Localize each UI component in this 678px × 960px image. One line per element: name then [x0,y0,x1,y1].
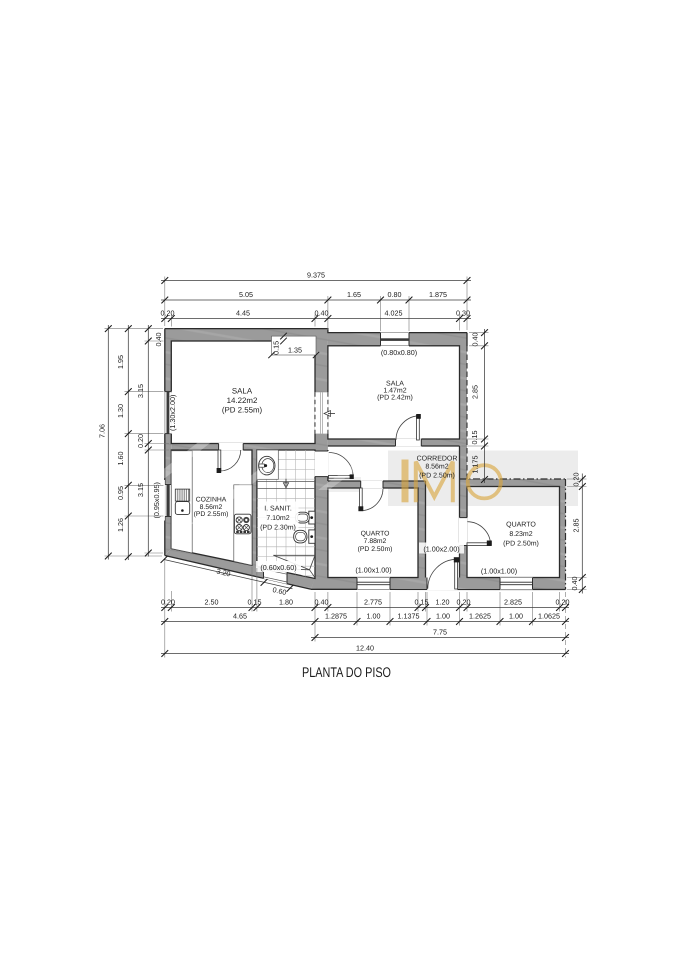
svg-text:0.15: 0.15 [248,598,262,607]
svg-text:(0.95x0.95): (0.95x0.95) [152,482,161,518]
svg-text:0.40: 0.40 [315,309,329,318]
svg-text:1.47m2: 1.47m2 [383,388,406,395]
svg-text:3.15: 3.15 [136,384,145,398]
svg-text:COZINHA: COZINHA [196,497,227,504]
svg-text:1.00: 1.00 [436,612,450,621]
svg-text:1.60: 1.60 [116,452,125,466]
svg-text:2.85: 2.85 [471,385,480,399]
svg-text:8.23m2: 8.23m2 [509,531,532,538]
svg-text:0.40: 0.40 [154,333,163,347]
svg-text:1.26: 1.26 [116,518,125,532]
svg-text:1.30: 1.30 [116,404,125,418]
svg-text:4.65: 4.65 [233,612,247,621]
svg-text:0.20: 0.20 [556,598,570,607]
svg-text:(0.60x0.60): (0.60x0.60) [260,563,296,572]
svg-text:(1.00x2.00): (1.00x2.00) [423,545,459,554]
svg-text:(PD 2.50m): (PD 2.50m) [358,546,393,553]
svg-text:(PD 2.50m): (PD 2.50m) [503,540,539,548]
svg-text:SALA: SALA [232,387,253,396]
svg-text:1.95: 1.95 [116,355,125,369]
svg-text:(1.00x1.00): (1.00x1.00) [355,565,391,574]
svg-text:1.00: 1.00 [367,612,381,621]
svg-text:1.0625: 1.0625 [538,612,560,621]
svg-text:(1.00x1.00): (1.00x1.00) [481,567,517,576]
svg-text:0.80: 0.80 [388,290,402,299]
svg-text:2.775: 2.775 [364,598,382,607]
svg-text:1.175: 1.175 [471,456,480,474]
svg-text:(PD 2.55m): (PD 2.55m) [194,511,229,518]
svg-text:SALA: SALA [386,381,404,388]
svg-text:(PD 2.50m): (PD 2.50m) [419,472,455,480]
svg-text:7.88m2: 7.88m2 [364,538,387,545]
svg-text:12.40: 12.40 [356,644,374,653]
svg-text:CORREDOR: CORREDOR [417,456,458,463]
svg-text:(PD 2.30m): (PD 2.30m) [260,524,296,532]
svg-text:0.40: 0.40 [570,577,579,591]
svg-text:0.15: 0.15 [272,341,281,355]
svg-text:14.22m2: 14.22m2 [227,396,258,405]
svg-text:9.375: 9.375 [307,271,325,280]
svg-text:1.875: 1.875 [429,290,447,299]
svg-text:PLANTA DO PISO: PLANTA DO PISO [302,664,391,680]
svg-text:1.2625: 1.2625 [469,612,491,621]
svg-text:(PD 2.42m): (PD 2.42m) [377,394,413,402]
svg-text:0.30: 0.30 [456,309,470,318]
svg-text:4.45: 4.45 [236,309,250,318]
svg-text:(PD 2.55m): (PD 2.55m) [222,406,263,415]
svg-text:0.20: 0.20 [136,434,145,448]
svg-text:0.20: 0.20 [161,598,175,607]
svg-text:0.40: 0.40 [315,598,329,607]
svg-text:0.15: 0.15 [470,431,479,445]
svg-text:(0.80x0.80): (0.80x0.80) [381,348,417,357]
svg-text:4.025: 4.025 [385,309,403,318]
svg-text:(1.30x2.00): (1.30x2.00) [168,395,177,431]
svg-text:1.35: 1.35 [288,346,302,355]
svg-text:1.00: 1.00 [509,612,523,621]
svg-text:QUARTO: QUARTO [506,522,536,529]
svg-text:1.65: 1.65 [347,290,361,299]
svg-text:1.20: 1.20 [436,598,450,607]
svg-text:7.06: 7.06 [98,424,107,438]
svg-text:2.825: 2.825 [504,598,522,607]
svg-text:8.56m2: 8.56m2 [200,504,223,511]
svg-text:2.85: 2.85 [572,519,581,533]
svg-text:1.2875: 1.2875 [325,612,347,621]
svg-text:2.50: 2.50 [205,598,219,607]
svg-text:7.75: 7.75 [433,628,447,637]
svg-text:8.56m2: 8.56m2 [425,464,448,471]
svg-text:5.05: 5.05 [239,290,253,299]
svg-text:0.20: 0.20 [572,473,581,487]
svg-text:7.10m2: 7.10m2 [266,515,289,522]
svg-text:0.40: 0.40 [471,333,480,347]
svg-text:I. SANIT.: I. SANIT. [264,506,292,513]
svg-text:0.20: 0.20 [161,309,175,318]
svg-text:0.15: 0.15 [415,598,429,607]
svg-text:0.95: 0.95 [116,486,125,500]
svg-text:QUARTO: QUARTO [361,531,390,538]
svg-text:3.15: 3.15 [136,483,145,497]
svg-text:1.1375: 1.1375 [398,612,420,621]
svg-text:1.80: 1.80 [279,598,293,607]
svg-text:0.20: 0.20 [457,598,471,607]
